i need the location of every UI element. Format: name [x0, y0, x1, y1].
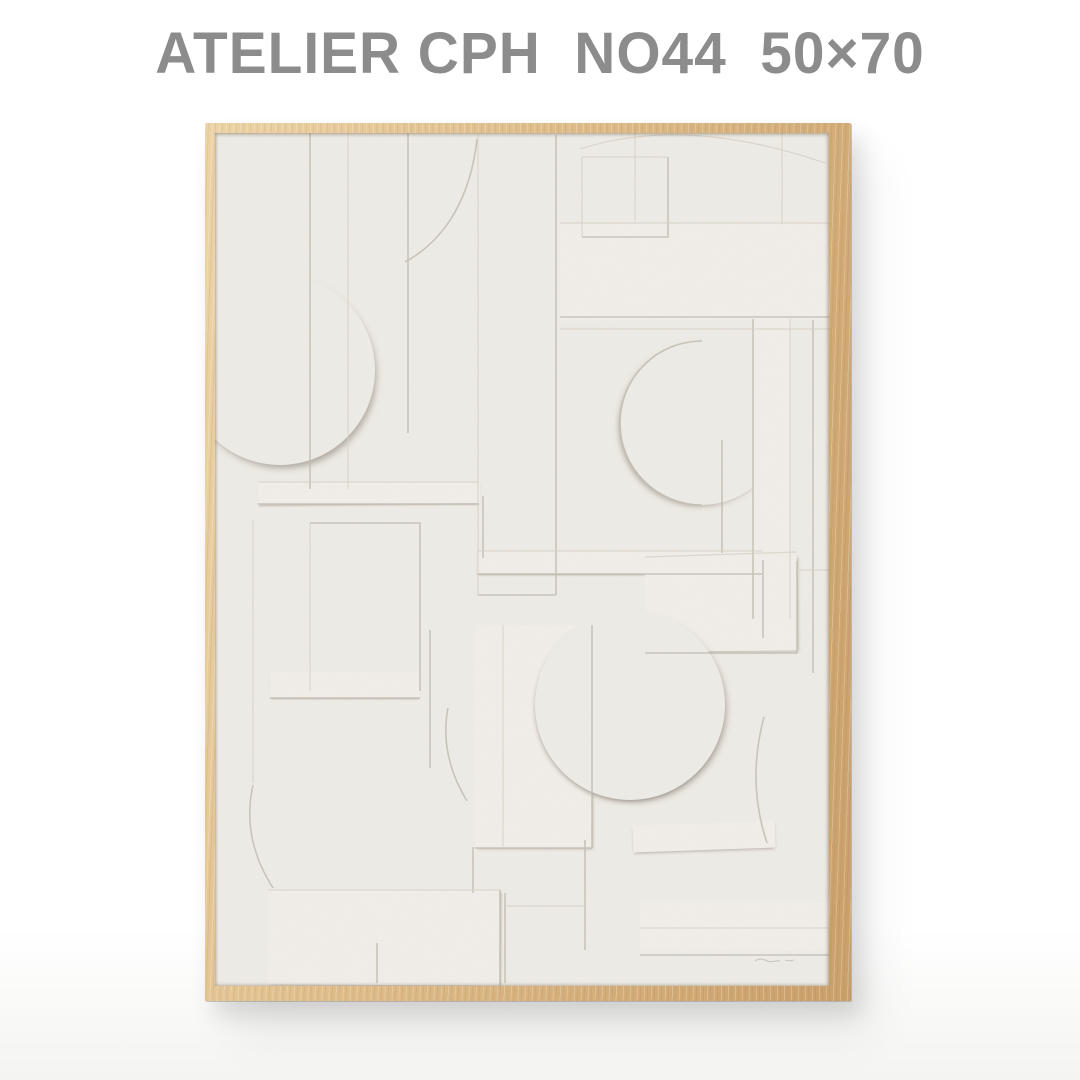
relief-tape-left: [270, 672, 420, 698]
relief-circle-center: [535, 610, 725, 800]
relief-halfdisc-left: [215, 275, 375, 465]
relief-strip-top-center: [478, 133, 556, 595]
relief-band-top-right: [559, 222, 829, 322]
relief-bar-middle-left: [258, 481, 480, 505]
poster-frame: [205, 123, 851, 1001]
artist-signature-mark: [755, 959, 794, 962]
product-photo: ATELIER CPH NO44 50×70: [0, 0, 1080, 1080]
paper-relief-artwork: [215, 133, 829, 986]
relief-band-bottom-left: [268, 889, 500, 985]
relief-band-bottom-right: [640, 901, 829, 951]
product-title: ATELIER CPH NO44 50×70: [11, 20, 1069, 87]
relief-tape-bottom: [633, 821, 776, 853]
